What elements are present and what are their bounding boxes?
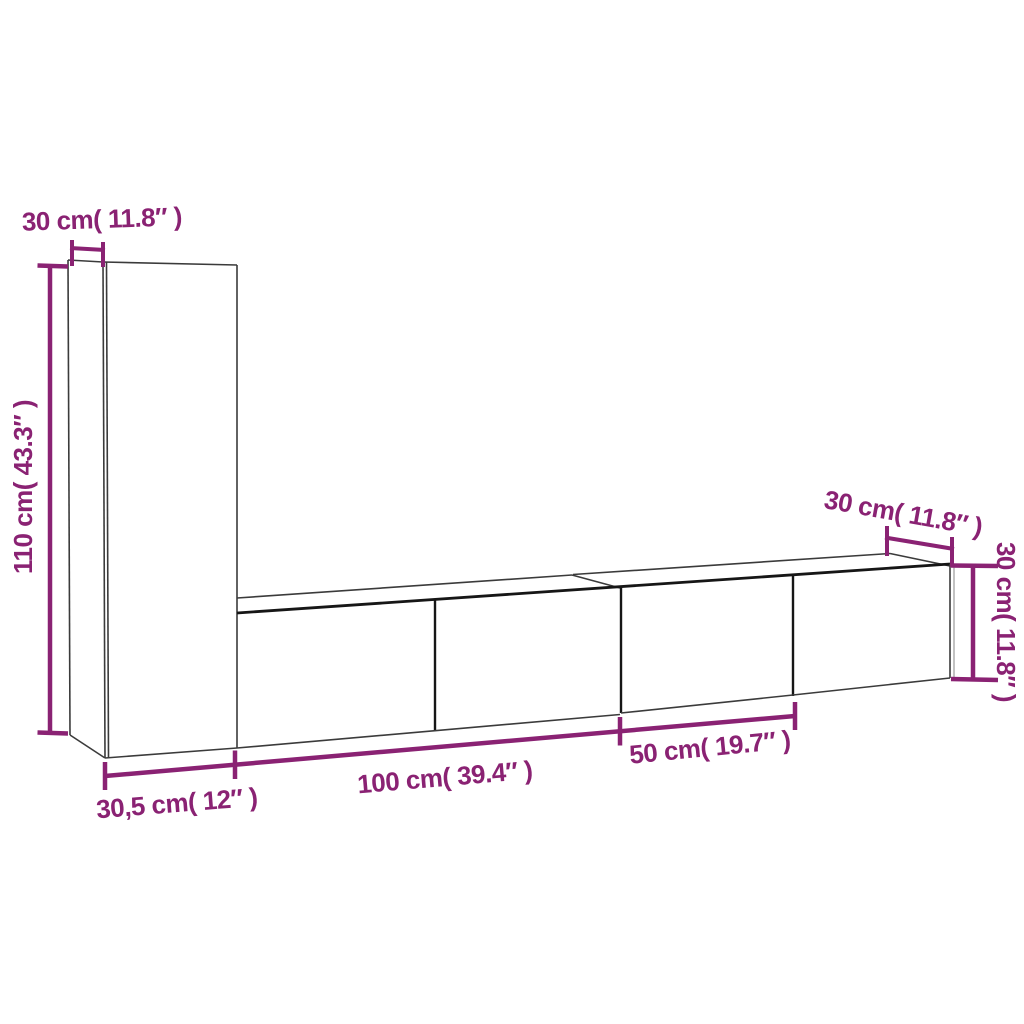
tv-cabinets-outline (237, 554, 954, 749)
bottom-edge-50 (621, 695, 793, 713)
dim-left-height (38, 266, 69, 734)
dim-top-left-depth (70, 240, 105, 267)
dim-label-right: 30 cm( 11.8″ ) (991, 542, 1021, 702)
dim-label-bottom-mid: 100 cm( 39.4″ ) (356, 755, 533, 800)
dim-cap (951, 566, 998, 567)
tall-front-bottom-edge (105, 748, 237, 758)
tall-front-top-edge (103, 262, 237, 265)
bottom-edge-right (793, 678, 950, 695)
dimension-diagram-svg: 30 cm( 11.8″ ) 110 cm( 43.3″ ) 30,5 cm( … (0, 0, 1024, 1024)
dim-label-bottom-left: 30,5 cm( 12″ ) (95, 782, 258, 825)
dim-line (885, 538, 954, 550)
dim-label-bottom-right: 50 cm( 19.7″ ) (628, 724, 792, 769)
tall-cabinet-outline (68, 260, 237, 758)
bottom-edge-100 (237, 715, 620, 749)
dim-cap (951, 679, 998, 680)
dim-cap (38, 733, 69, 734)
dim-line (70, 248, 105, 250)
front-top-edge (237, 564, 950, 613)
tall-side-left-edge (68, 260, 70, 735)
dim-label-top-left: 30 cm( 11.8″ ) (21, 201, 182, 237)
diagram-canvas: 30 cm( 11.8″ ) 110 cm( 43.3″ ) 30,5 cm( … (0, 0, 1024, 1024)
dim-label-left: 110 cm( 43.3″ ) (8, 400, 38, 574)
tall-front-left-edge2 (107, 263, 109, 758)
dim-cap (38, 266, 69, 267)
dim-label-top-right: 30 cm( 11.8″ ) (822, 484, 985, 542)
dim-right-height (951, 566, 998, 681)
tall-side-bottom-edge (70, 735, 105, 758)
tall-front-left-edge (103, 262, 105, 758)
